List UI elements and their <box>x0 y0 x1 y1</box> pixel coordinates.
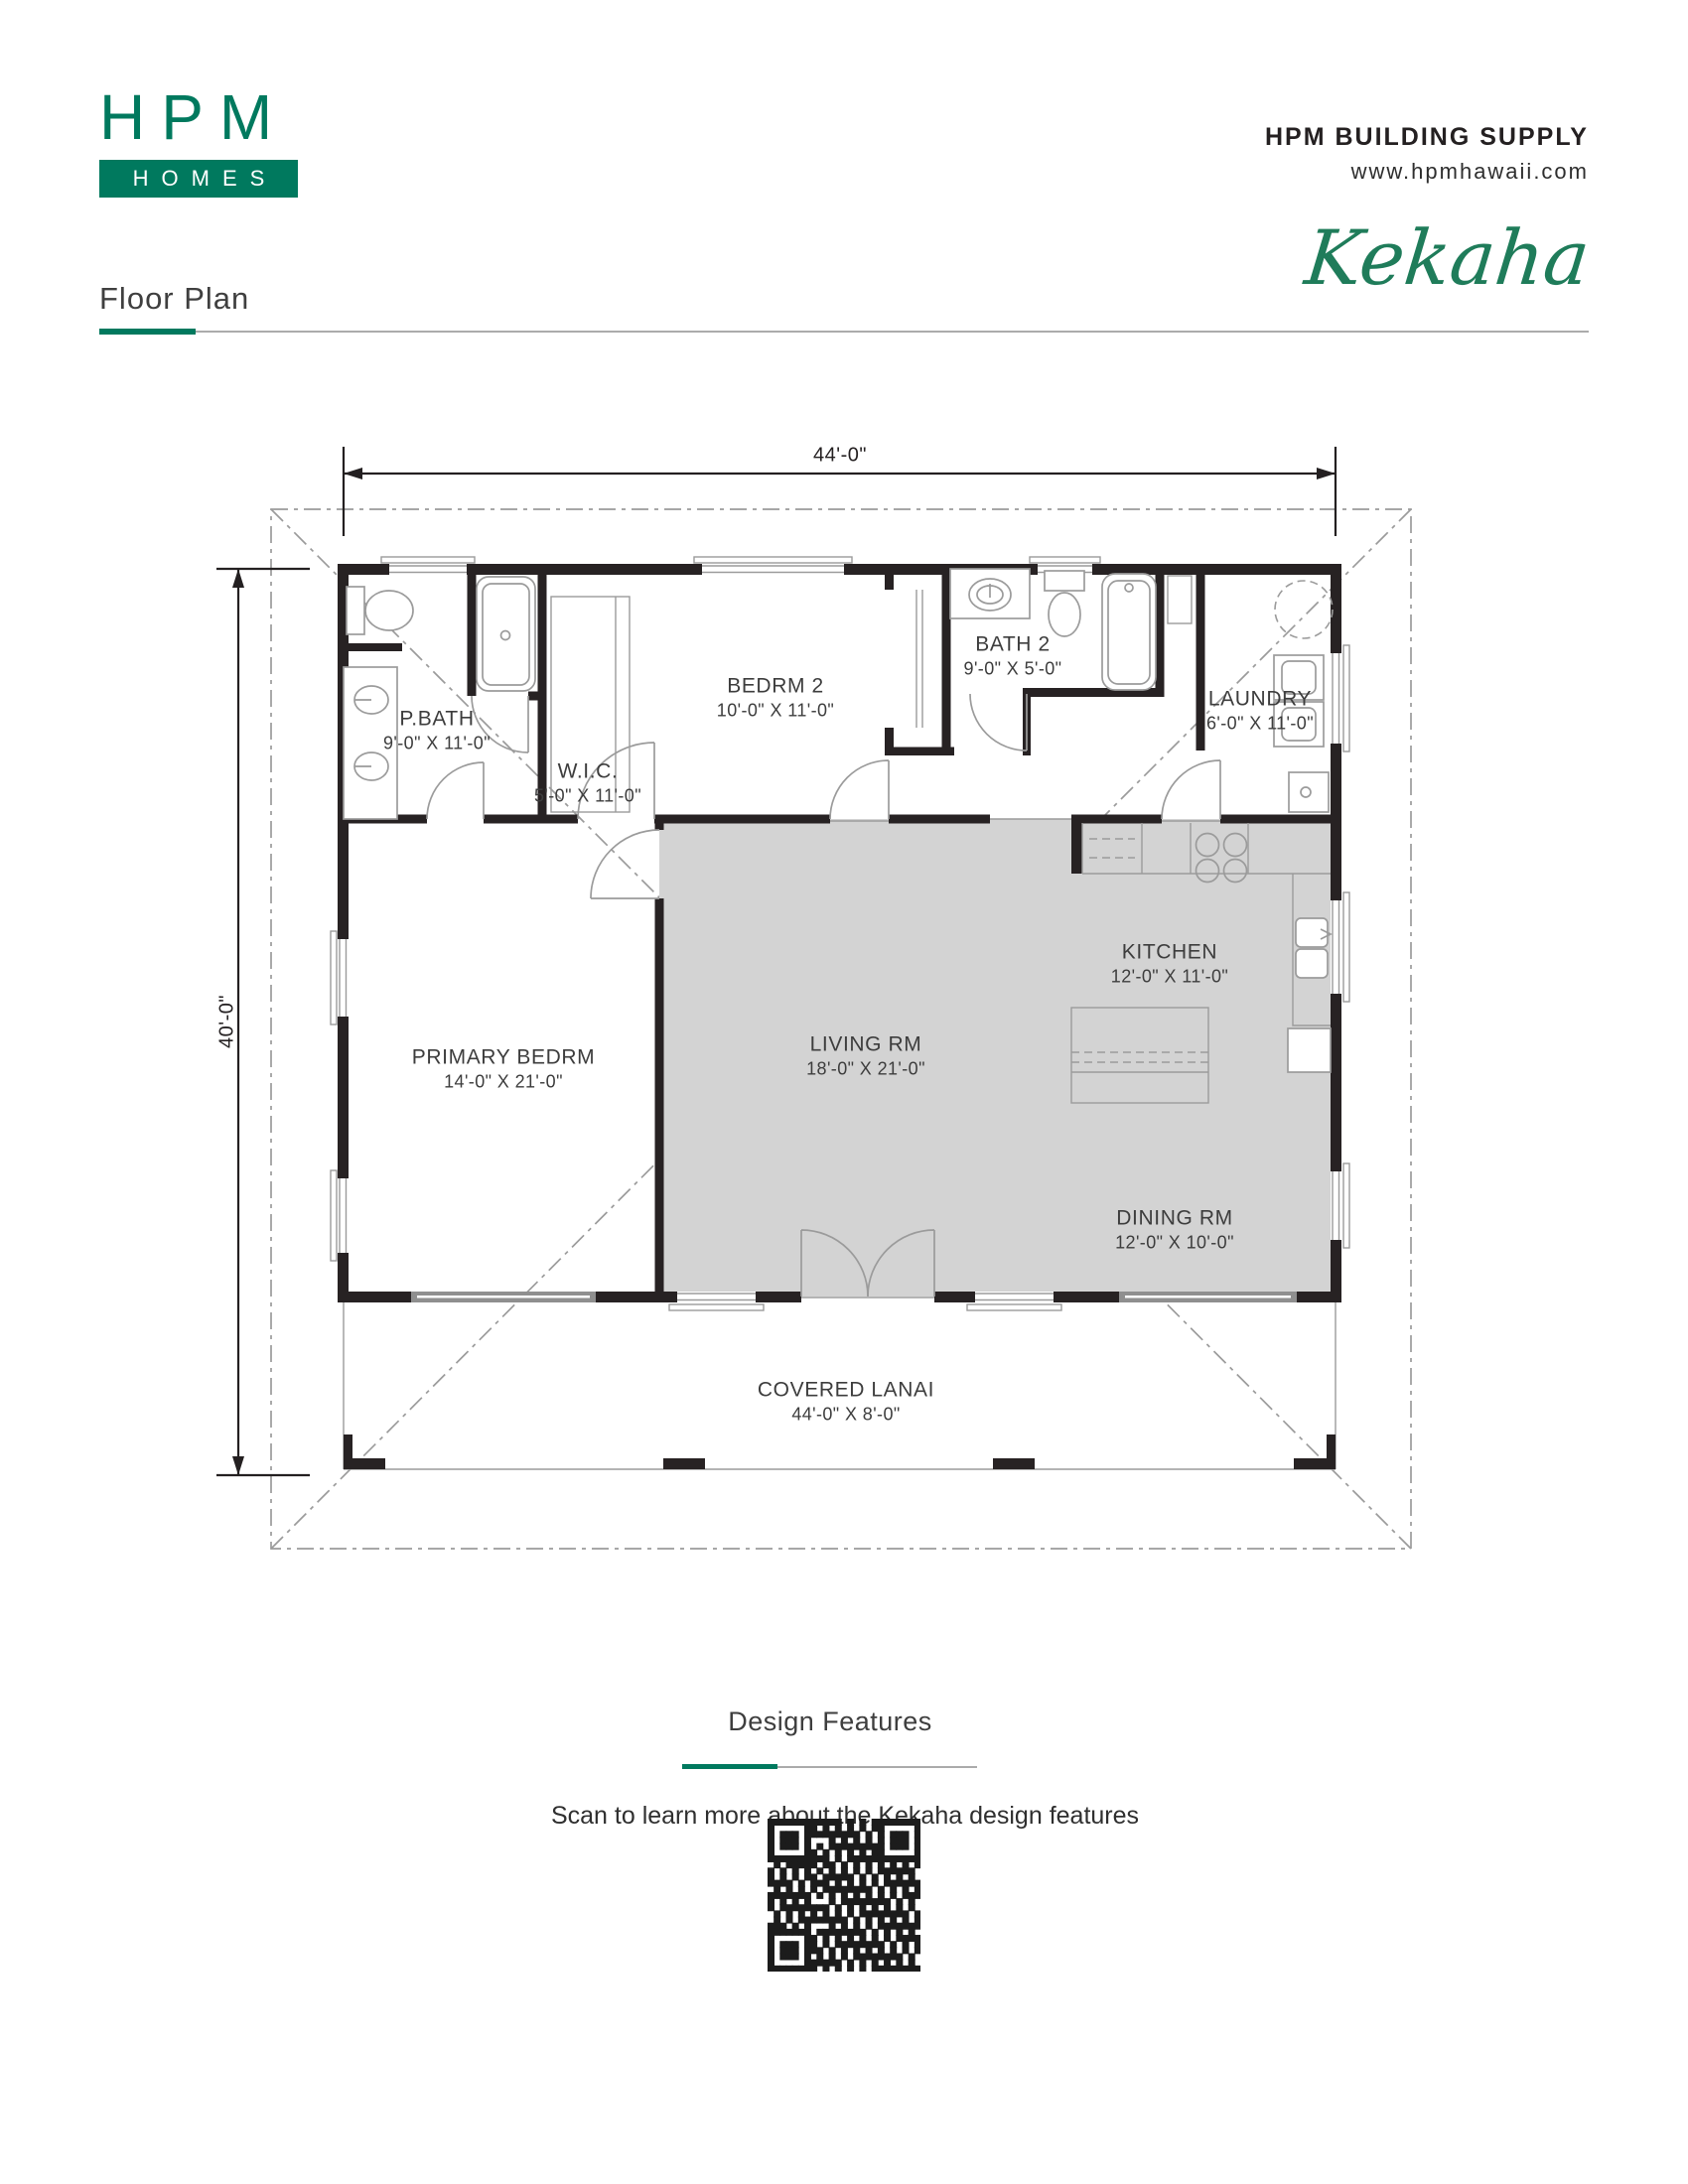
design-features-title: Design Features <box>728 1706 932 1737</box>
lanai-post <box>993 1458 1035 1469</box>
room-label-kitchen: KITCHEN12'-0" X 11'-0" <box>1111 941 1228 988</box>
lanai-post <box>344 1458 385 1469</box>
room-label-living-rm: LIVING RM18'-0" X 21'-0" <box>806 1033 925 1080</box>
refrigerator-icon <box>1288 1028 1331 1072</box>
toilet-icon <box>1045 571 1084 591</box>
room-label-dining-rm: DINING RM12'-0" X 10'-0" <box>1115 1207 1234 1254</box>
overall-width-dim: 44'-0" <box>813 445 867 468</box>
linen-closet <box>1168 576 1192 623</box>
room-label-primary-bedrm: PRIMARY BEDRM14'-0" X 21'-0" <box>412 1046 595 1093</box>
bathtub-icon <box>477 577 535 691</box>
toilet-icon <box>347 587 364 634</box>
room-label-bedrm2: BEDRM 210'-0" X 11'-0" <box>717 675 834 722</box>
room-label-laundry: LAUNDRY6'-0" X 11'-0" <box>1206 688 1314 735</box>
qr-code <box>768 1819 920 1972</box>
room-label-bath2: BATH 29'-0" X 5'-0" <box>964 633 1062 680</box>
design-features-rule <box>777 1766 977 1768</box>
room-label-covered-lanai: COVERED LANAI44'-0" X 8'-0" <box>758 1379 934 1426</box>
overall-depth-dim: 40'-0" <box>216 995 239 1048</box>
room-label-pbath: P.BATH9'-0" X 11'-0" <box>383 708 491 754</box>
kitchen-sink-icon <box>1296 918 1328 947</box>
design-features-rule-accent <box>682 1764 777 1769</box>
water-heater-icon <box>1275 581 1333 638</box>
utility-sink-icon <box>1289 772 1329 812</box>
room-label-wic: W.I.C.5'-0" X 11'-0" <box>534 760 641 807</box>
bedrm2-closet-doors <box>916 590 922 728</box>
lanai-post <box>663 1458 705 1469</box>
lanai-post <box>1294 1458 1336 1469</box>
floor-plan-sheet: { "header": { "logo_top": "HPM", "logo_b… <box>0 0 1688 2184</box>
